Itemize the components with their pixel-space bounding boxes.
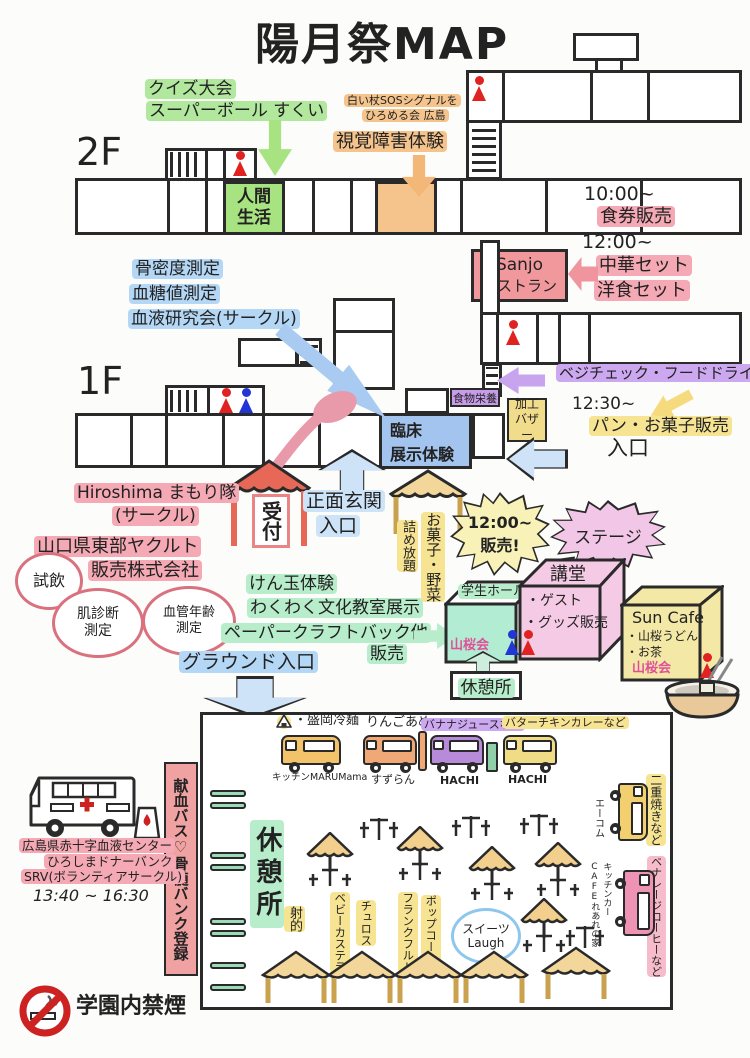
processing-bazaar-box: 加工バザー [507, 398, 547, 442]
f2-wall [502, 70, 505, 123]
guest-label: ・ゲスト [526, 592, 582, 610]
western-set-label: 洋食セット [594, 281, 690, 302]
goods-label: ・グッズ販売 [524, 614, 608, 632]
clinical-exhibit-box: 臨床 展示体験 [379, 413, 472, 469]
hiroshima-mamoritai-label-2: (サークル) [112, 507, 199, 527]
f1-wall [130, 413, 133, 468]
human-life-room-label: 人間生活 [235, 187, 272, 230]
snack-tent-label-2: 詰め放題 [399, 520, 414, 572]
food-truck-2 [363, 731, 417, 775]
f2-human-life-room: 人間生活 [223, 181, 285, 235]
rest-area-box: 休憩所 [450, 671, 522, 700]
side-truck-1 [608, 783, 652, 841]
truck-menu-4: バターチキンカレーなど [502, 717, 629, 730]
hiroshima-mamoritai-label: Hiroshima まもり隊 [74, 484, 239, 504]
purple-left-arrow-icon [497, 367, 545, 394]
f2-wall [460, 178, 463, 235]
entrance-label: 入口 [607, 436, 649, 460]
toilet-person-icon [472, 76, 486, 102]
sanjo-name-1: Sanjo [496, 255, 543, 275]
blood-sugar-label: 血糖値測定 [129, 285, 220, 305]
food-truck-4 [503, 731, 557, 775]
bench-icon [210, 930, 246, 937]
ticket-sale-label: 食券販売 [597, 207, 675, 228]
f1-corridor [480, 240, 500, 315]
toilet-person-icon [506, 320, 520, 346]
kendama-label: けん玉体験 [246, 575, 337, 595]
entrance-arrow-icon [509, 440, 565, 478]
sos-label-2: ひろめる会 広島 [362, 110, 449, 123]
stall-tent-icon [540, 946, 612, 1002]
f2-wall [350, 178, 353, 235]
ground-rest-area-label: 休憩所 [251, 820, 281, 928]
table-chairs-icon [358, 814, 400, 844]
f1-wall [165, 413, 168, 468]
side-truck-name-2a: キッチンカー [601, 862, 611, 916]
sos-label-1: 白い杖SOSシグナルを [344, 95, 461, 108]
person-icon [521, 630, 535, 656]
table-chairs-icon [518, 810, 560, 840]
truck-name-1: キッチンMARUMama [272, 773, 367, 784]
bench-icon [210, 790, 246, 797]
udon-label: ・山桜うどん [626, 629, 698, 645]
blood-center-label: 広島県赤十字血液センター [19, 839, 175, 853]
f1-wall [588, 312, 591, 365]
superball-label: スーパーボール すくい [146, 102, 327, 122]
page-title: 陽月祭MAP [255, 20, 509, 71]
time-1230: 12:30~ [572, 395, 635, 415]
no-smoking-icon [18, 984, 72, 1038]
umbrella-table-icon [534, 842, 582, 900]
time-1200: 12:00~ [582, 232, 653, 254]
umbrella-table-icon [468, 846, 516, 904]
stall-tent-icon [458, 950, 530, 1006]
f2-wall [167, 178, 170, 235]
tea-label: ・お茶 [626, 645, 662, 661]
signboard-icon [418, 731, 427, 771]
rest-area-label: 休憩所 [458, 673, 515, 698]
donor-bank-label: ひろしまドナーバンク [44, 855, 176, 869]
ground-gate-label: グラウンド入口 [179, 652, 318, 674]
f2-wall [205, 148, 208, 181]
bone-density-label: 骨密度測定 [132, 260, 223, 280]
stage-label: ステージ [574, 523, 642, 548]
bakery-label: パン・お菓子販売 [589, 417, 732, 437]
ground-arrow-icon [206, 679, 304, 715]
umbrella-table-icon [396, 826, 444, 884]
snack-tent-label-1: お菓子・野菜 [424, 512, 441, 602]
f1-wall [558, 312, 561, 365]
noon-sale-label: 販売! [480, 532, 519, 556]
festival-map: 陽月祭MAP 2F 人間生活 クイズ大会 スーパーボール すくい 白い杖SOSシ… [0, 0, 750, 1058]
udon-bowl-icon [660, 655, 750, 721]
vegecheck-label: ベジチェック・フードドライブ [556, 365, 750, 382]
bench-icon [210, 918, 246, 925]
truck-name-2: すずらん [371, 774, 415, 787]
truck-name-4: HACHI [508, 774, 547, 787]
reception-label: 受付 [257, 501, 286, 541]
blood-time-label: 13:40 ~ 16:30 [33, 887, 149, 905]
f2-roof-box [573, 33, 639, 61]
clinical-line2: 展示体験 [390, 441, 469, 465]
f2-wall [545, 178, 548, 235]
noon-sale-time: 12:00~ [468, 513, 532, 532]
f2-right-building [466, 70, 742, 123]
chinese-set-label: 中華セット [596, 256, 692, 277]
truck-name-3: HACHI [440, 775, 479, 788]
yakult-label-2: 販売株式会社 [88, 561, 202, 582]
blood-research-label: 血液研究会(サークル) [128, 310, 300, 330]
skin-check-bubble: 肌診断測定 [52, 588, 144, 658]
bench-icon [210, 864, 246, 871]
reception-box: 受付 [252, 494, 290, 548]
visual-impairment-label: 視覚障害体験 [333, 132, 447, 153]
stall-label-churros: チュロス [359, 900, 372, 946]
floor1-label: 1F [77, 360, 123, 404]
bench-icon [210, 962, 246, 969]
food-nutrition-label: 食物栄養 [453, 390, 497, 406]
main-gate-label-2: 入口 [316, 516, 360, 538]
f2-wall [590, 70, 593, 123]
food-nutrition-box: 食物栄養 [450, 388, 500, 407]
f2-stairs-icon [170, 152, 202, 177]
f1-wall [496, 312, 499, 365]
person-icon [505, 630, 519, 656]
umbrella-table-icon [306, 832, 354, 890]
auditorium-label: 講堂 [550, 563, 586, 586]
stall-tent-icon [260, 950, 332, 1006]
quiz-label: クイズ大会 [145, 80, 236, 100]
f2-wall [647, 70, 650, 123]
stall-tent-icon [392, 950, 464, 1006]
f2-visual-exp-room [375, 181, 437, 235]
donor-sign-icon [133, 804, 161, 842]
green-down-arrow-icon [258, 120, 292, 176]
processing-bazaar-label: 加工バザー [514, 397, 540, 444]
f2-stairs-icon [472, 128, 496, 172]
f1-wall [207, 385, 210, 416]
side-truck-name-1: エーコム [592, 798, 604, 838]
f2-wall [312, 178, 315, 235]
clinical-line1: 臨床 [390, 417, 469, 441]
toilet-person-icon [233, 151, 247, 177]
bench-icon [210, 852, 246, 859]
stall-tent-icon [326, 950, 398, 1006]
srv-label: SRV(ボランティアサークル) [21, 870, 185, 884]
main-gate-label-1: 正面玄関 [303, 491, 385, 513]
menu-board-icon [486, 742, 498, 772]
stall-label-shateki: 射的 [286, 906, 301, 932]
food-truck-1 [281, 729, 341, 775]
vessel-age-bubble: 血管年齢測定 [142, 586, 236, 656]
sale-label: 販売 [367, 645, 407, 665]
f1-annex-room [472, 413, 505, 459]
floor2-label: 2F [76, 131, 122, 175]
bench-icon [210, 984, 246, 991]
onigiri-icon [276, 714, 292, 729]
truck-menu-1: ・盛岡冷麺 [294, 714, 359, 729]
food-truck-3 [430, 731, 484, 775]
bench-icon [210, 802, 246, 809]
table-chairs-icon [450, 812, 492, 842]
time-1000: 10:00~ [584, 184, 655, 206]
f1-wall [536, 312, 539, 365]
f2-wall [205, 178, 208, 235]
f1-room [405, 388, 449, 414]
classroom-label: わくわく文化教室展示 [247, 599, 423, 619]
no-smoking-label: 学園内禁煙 [76, 994, 186, 1019]
side-truck-2 [613, 870, 659, 936]
sun-cafe-label: Sun Cafe [632, 608, 704, 629]
f1-stairs-icon [170, 390, 202, 412]
f1-wall [333, 330, 395, 333]
papercraft-label: ペーパークラフトバック他 [221, 624, 431, 644]
